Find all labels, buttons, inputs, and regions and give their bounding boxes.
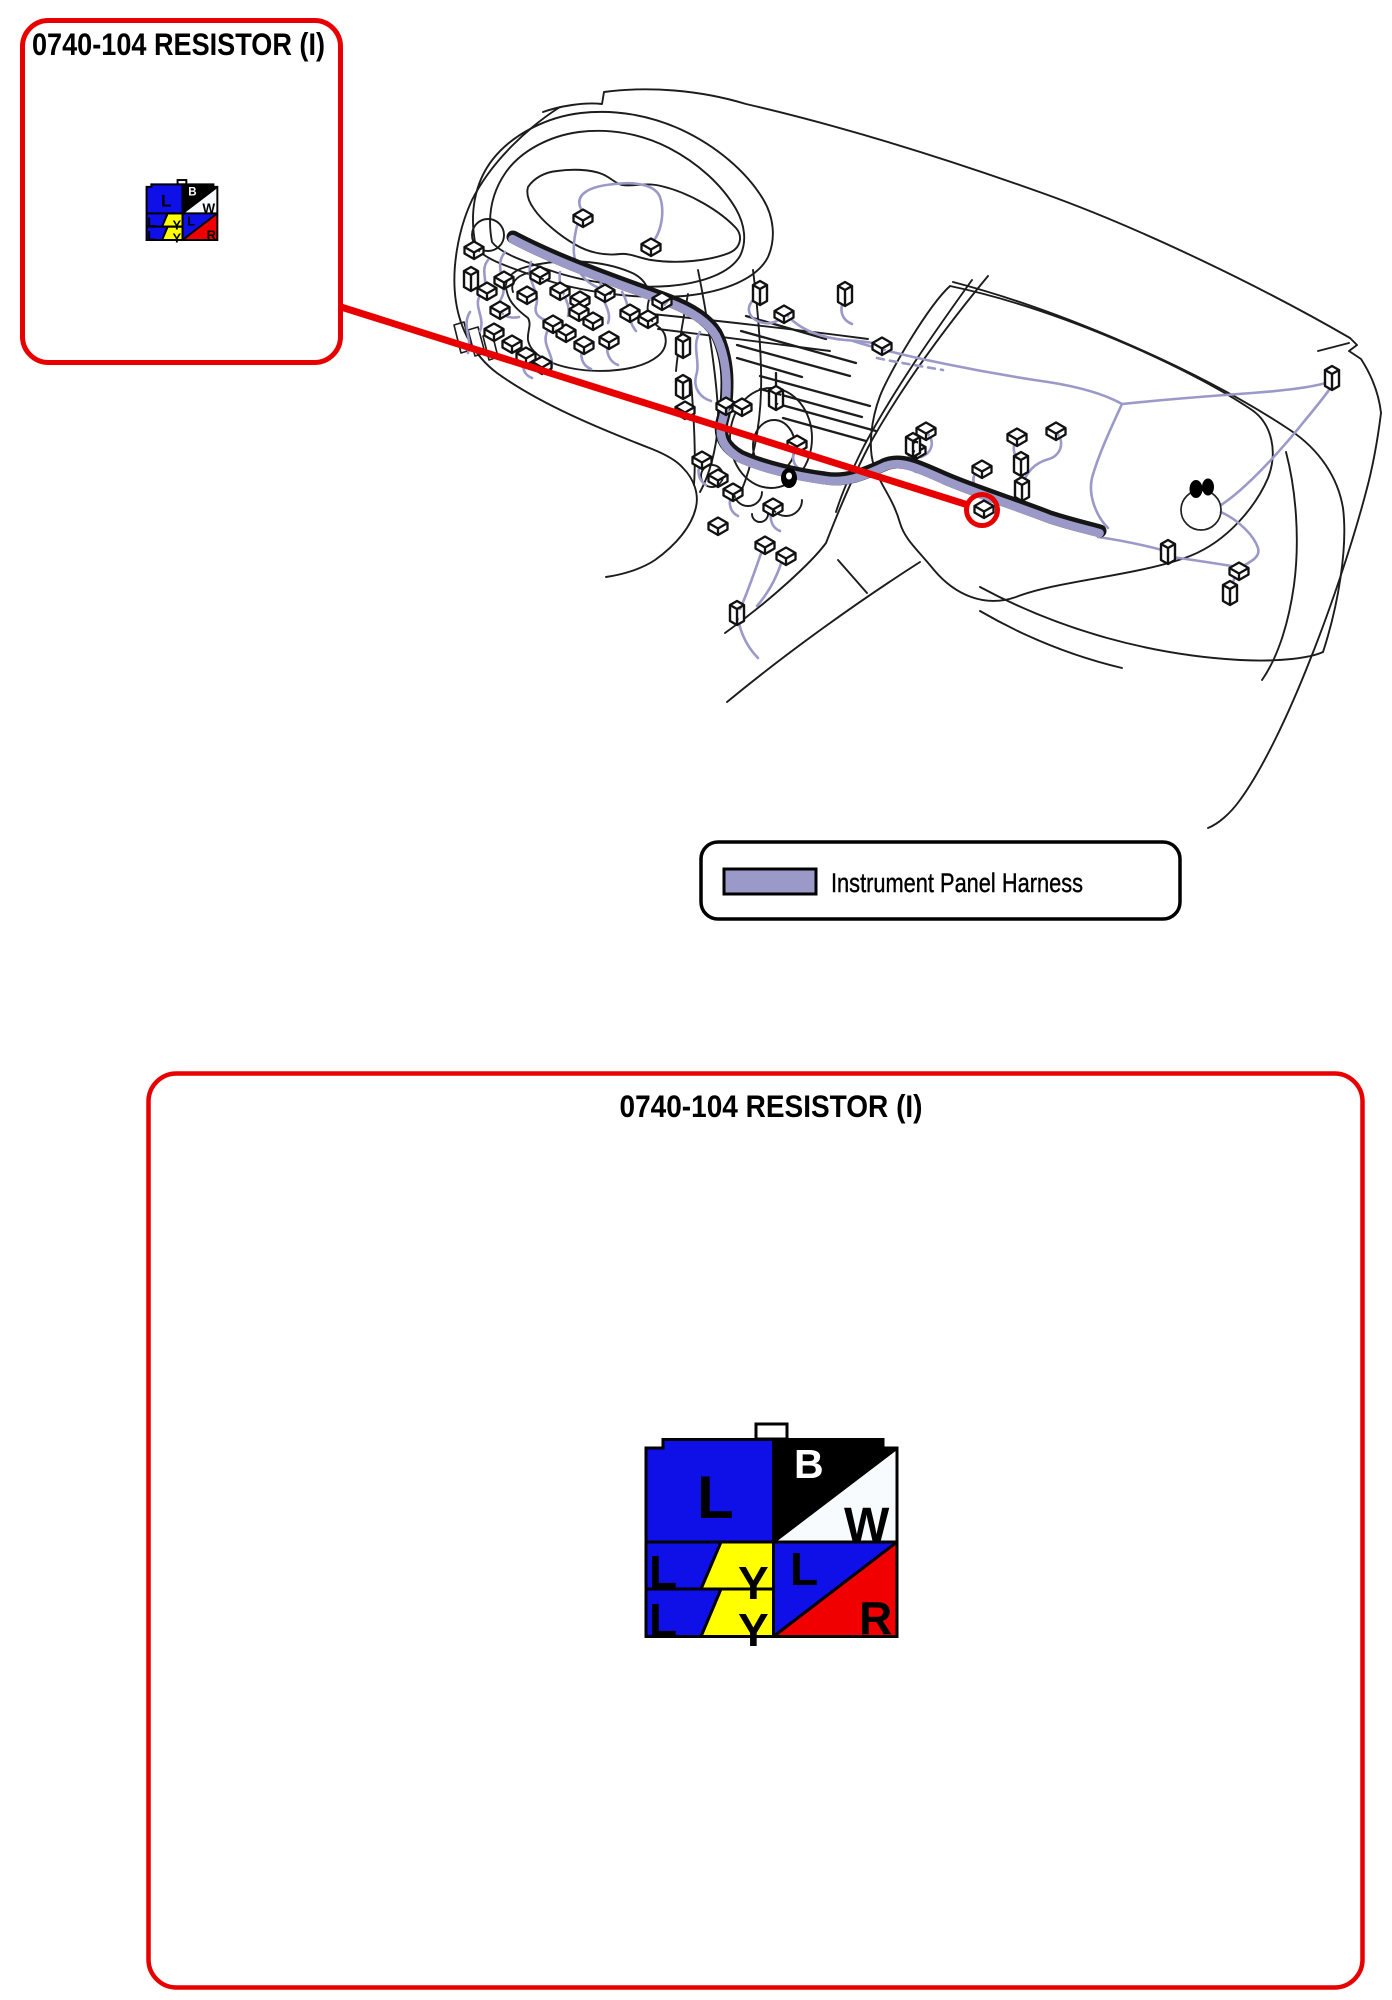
svg-text:Instrument Panel Harness: Instrument Panel Harness — [831, 868, 1083, 898]
svg-text:0740-104 RESISTOR (I): 0740-104 RESISTOR (I) — [32, 26, 325, 62]
svg-text:0740-104 RESISTOR (I): 0740-104 RESISTOR (I) — [620, 1088, 923, 1124]
